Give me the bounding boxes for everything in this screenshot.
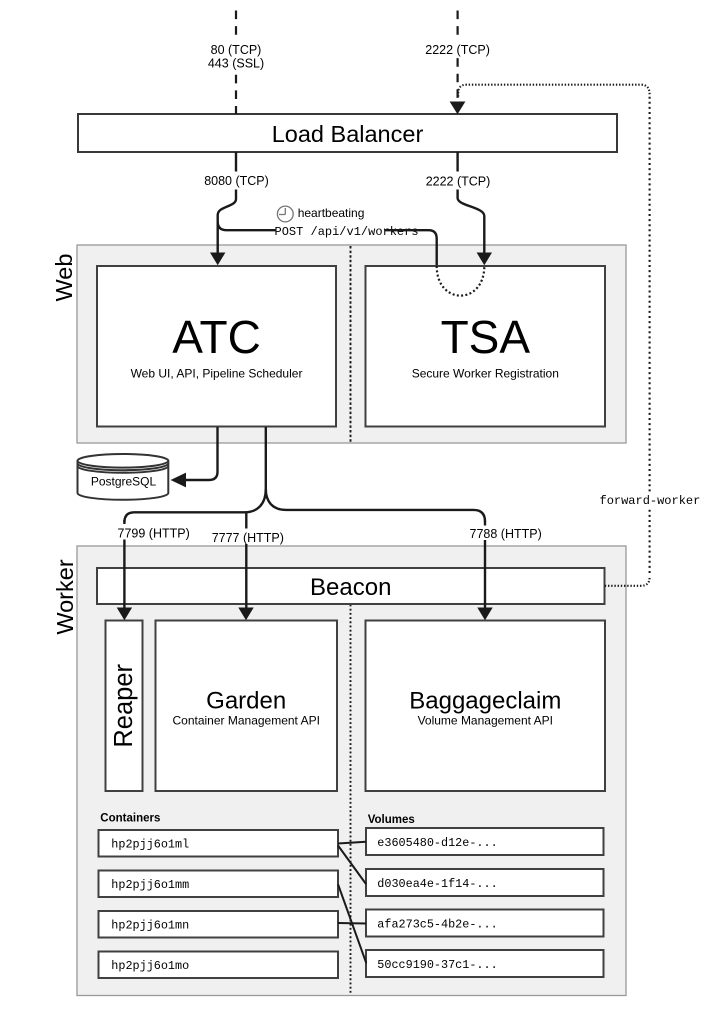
- svg-text:443 (SSL): 443 (SSL): [208, 57, 264, 71]
- svg-text:d030ea4e-1f14-...: d030ea4e-1f14-...: [377, 877, 497, 891]
- svg-text:80 (TCP): 80 (TCP): [211, 43, 262, 57]
- svg-text:8080 (TCP): 8080 (TCP): [204, 174, 269, 188]
- svg-text:7799 (HTTP): 7799 (HTTP): [118, 527, 190, 541]
- svg-text:heartbeating: heartbeating: [298, 206, 365, 220]
- svg-text:7777 (HTTP): 7777 (HTTP): [212, 531, 284, 545]
- svg-text:Web UI, API, Pipeline Schedule: Web UI, API, Pipeline Scheduler: [131, 367, 303, 381]
- svg-text:2222 (TCP): 2222 (TCP): [425, 43, 490, 57]
- svg-text:ATC: ATC: [172, 311, 261, 363]
- svg-text:hp2pjj6o1mn: hp2pjj6o1mn: [111, 918, 189, 932]
- svg-text:hp2pjj6o1ml: hp2pjj6o1ml: [111, 837, 189, 851]
- svg-text:Baggageclaim: Baggageclaim: [409, 688, 561, 715]
- svg-text:afa273c5-4b2e-...: afa273c5-4b2e-...: [377, 917, 497, 931]
- svg-text:e3605480-d12e-...: e3605480-d12e-...: [377, 836, 497, 850]
- svg-text:TSA: TSA: [441, 311, 531, 363]
- svg-text:Garden: Garden: [206, 688, 286, 715]
- svg-text:Secure Worker Registration: Secure Worker Registration: [412, 367, 559, 381]
- svg-text:Container Management API: Container Management API: [172, 714, 319, 728]
- svg-text:PostgreSQL: PostgreSQL: [91, 475, 157, 489]
- svg-text:Volume Management API: Volume Management API: [418, 714, 553, 728]
- svg-text:hp2pjj6o1mm: hp2pjj6o1mm: [111, 878, 189, 892]
- svg-text:2222 (TCP): 2222 (TCP): [426, 175, 491, 189]
- svg-text:Load Balancer: Load Balancer: [272, 121, 424, 147]
- svg-text:forward-worker: forward-worker: [600, 494, 701, 508]
- svg-text:Containers: Containers: [100, 813, 160, 825]
- svg-text:Reaper: Reaper: [110, 663, 138, 747]
- svg-text:hp2pjj6o1mo: hp2pjj6o1mo: [111, 959, 189, 973]
- svg-text:7788 (HTTP): 7788 (HTTP): [470, 527, 542, 541]
- svg-text:Web: Web: [51, 254, 77, 302]
- svg-text:Volumes: Volumes: [368, 814, 415, 826]
- svg-text:Beacon: Beacon: [310, 574, 391, 601]
- svg-text:POST /api/v1/workers: POST /api/v1/workers: [275, 225, 419, 239]
- svg-text:Worker: Worker: [52, 559, 78, 634]
- svg-text:50cc9190-37c1-...: 50cc9190-37c1-...: [377, 958, 497, 972]
